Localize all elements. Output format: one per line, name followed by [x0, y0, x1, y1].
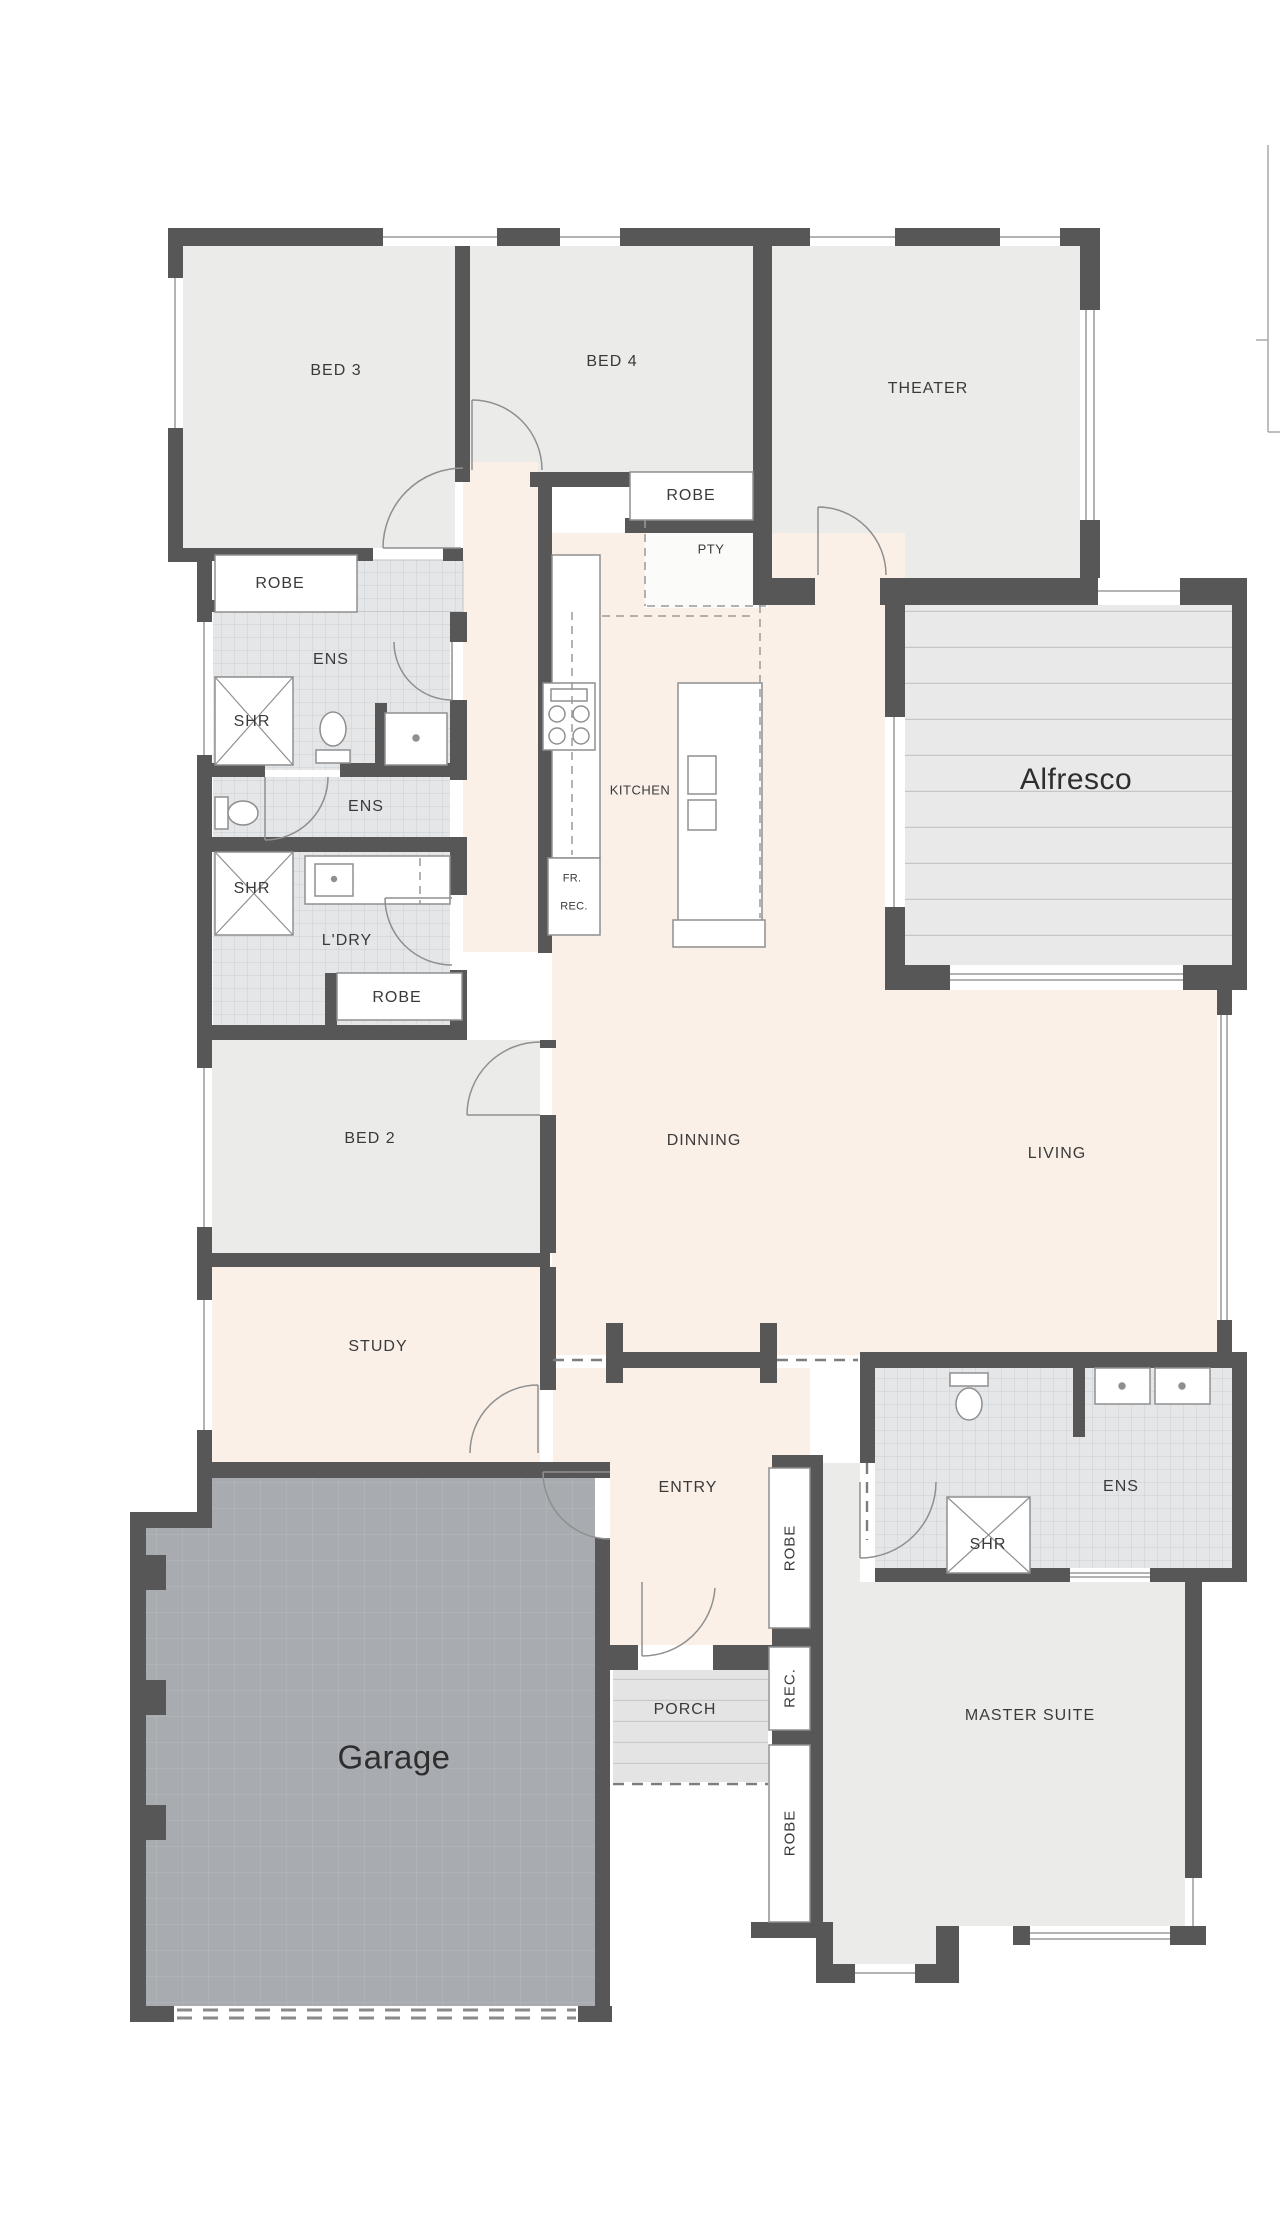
bed3-floor — [183, 246, 455, 548]
alfresco-deck — [905, 605, 1232, 965]
burner-icon — [573, 706, 589, 722]
toilet-icon — [956, 1388, 982, 1420]
wall — [325, 973, 337, 1025]
wall — [1232, 605, 1247, 990]
wall — [1183, 965, 1247, 990]
master-floor — [860, 1582, 1185, 1926]
fridge-recess — [548, 858, 600, 935]
wall — [772, 1455, 823, 1468]
wall — [450, 612, 467, 642]
garage-floor-upper — [212, 1478, 595, 1528]
page-edge-artifact — [1256, 145, 1280, 432]
recess-box — [769, 1647, 810, 1730]
bed2-floor — [212, 1040, 540, 1253]
window — [1217, 1015, 1232, 1320]
wall — [197, 837, 467, 852]
living-floor — [905, 990, 1217, 1355]
wall — [1232, 1352, 1247, 1582]
wall — [540, 1040, 556, 1048]
wall — [1185, 1582, 1202, 1878]
tap-icon — [1119, 1383, 1125, 1389]
wall — [168, 228, 1100, 246]
opening — [885, 717, 905, 907]
toilet-icon — [320, 712, 346, 746]
burner-icon — [549, 706, 565, 722]
tap-icon — [413, 735, 419, 741]
wall — [860, 1368, 875, 1463]
window — [1030, 1926, 1170, 1945]
tap-icon — [332, 877, 337, 882]
wall — [880, 578, 1098, 605]
kitchen-island-end — [673, 920, 765, 947]
robe-box — [769, 1468, 810, 1628]
bed4-floor — [470, 246, 753, 472]
master-hall-floor — [823, 1463, 860, 1926]
ens1-vestibule-tiles — [357, 560, 463, 612]
robe-box — [215, 555, 357, 612]
sliding-door — [950, 965, 1183, 990]
floor-plan-page: BED 3BED 4THEATERROBEENSSHRENSSHRL'DRYRO… — [0, 0, 1280, 2230]
pier — [146, 1680, 166, 1715]
floor-plan-drawing — [0, 0, 1280, 2230]
robe-box — [769, 1745, 810, 1922]
window — [1080, 310, 1100, 520]
wall — [443, 548, 463, 561]
nib-wall — [613, 1352, 768, 1368]
toilet-icon — [950, 1373, 988, 1386]
wall — [810, 1455, 823, 1922]
wall — [197, 1025, 467, 1040]
wall — [130, 2006, 174, 2022]
burner-icon — [573, 728, 589, 744]
wall — [530, 472, 630, 487]
pier — [146, 1555, 166, 1590]
wall — [1080, 246, 1100, 310]
wall — [751, 1922, 833, 1938]
wall — [885, 907, 905, 965]
sliding-door — [1070, 1568, 1150, 1582]
robe-box — [630, 472, 753, 520]
wall — [540, 1267, 556, 1390]
wall — [130, 1528, 146, 2022]
wall — [1180, 578, 1247, 605]
master-bay-floor — [833, 1926, 936, 1964]
robe-box — [337, 973, 462, 1020]
wall — [772, 1628, 810, 1647]
wall — [197, 600, 215, 612]
wall — [1080, 520, 1100, 578]
wall — [130, 1512, 212, 1528]
pantry-floor — [645, 520, 768, 608]
wall — [538, 937, 552, 953]
toilet-icon — [215, 797, 228, 829]
wall — [713, 1645, 772, 1670]
garage-door-opening — [174, 2006, 578, 2022]
hall-floor — [463, 462, 538, 952]
wall — [455, 246, 470, 482]
porch-floor — [613, 1670, 768, 1782]
wall — [860, 1352, 1247, 1368]
garage-floor-main — [146, 1528, 595, 2006]
sink-icon — [688, 800, 716, 830]
wall — [1217, 990, 1232, 1015]
pier — [760, 1323, 777, 1383]
wall — [885, 605, 905, 717]
burner-icon — [549, 728, 565, 744]
toilet-icon — [228, 801, 258, 825]
wall — [540, 1115, 556, 1253]
wall — [772, 1730, 810, 1745]
wall — [1073, 1365, 1085, 1437]
wall — [595, 1538, 610, 2022]
pier — [146, 1805, 166, 1840]
study-floor — [212, 1267, 540, 1462]
stove-panel — [551, 689, 587, 701]
wall — [885, 965, 950, 990]
wall — [595, 1462, 610, 1472]
wall — [753, 578, 815, 605]
toilet-icon — [316, 750, 350, 763]
sink-icon — [688, 756, 716, 794]
tap-icon — [1179, 1383, 1185, 1389]
pier — [606, 1323, 623, 1383]
wall — [197, 1462, 610, 1478]
wall — [197, 1253, 550, 1267]
